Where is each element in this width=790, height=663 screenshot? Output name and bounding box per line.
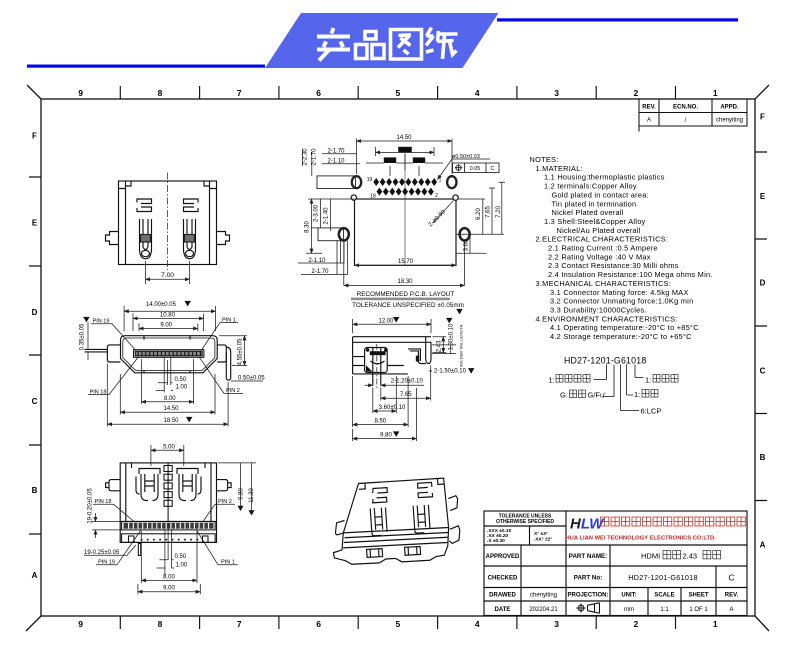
- svg-text:OTHERWISE SPECIFIED: OTHERWISE SPECIFIED: [496, 519, 554, 525]
- svg-text:4.1 Operating temperature:-2: 4.1 Operating temperature:-20°C to +85°C: [550, 323, 699, 332]
- svg-text:2-2.30: 2-2.30: [303, 148, 309, 166]
- svg-text:SOLDER TAIL LENGTH: SOLDER TAIL LENGTH: [459, 324, 464, 367]
- svg-text:8.30: 8.30: [305, 221, 311, 233]
- svg-text:HD27-1201-G61018: HD27-1201-G61018: [564, 356, 646, 366]
- svg-text:Nickel/Au Plated overall: Nickel/Au Plated overall: [557, 226, 641, 235]
- svg-text:6: 6: [316, 88, 321, 98]
- svg-text:B: B: [760, 453, 766, 462]
- svg-text:14.50: 14.50: [163, 406, 179, 412]
- svg-text:3: 3: [554, 88, 559, 98]
- svg-text:2-1.20±0.10: 2-1.20±0.10: [391, 379, 424, 385]
- svg-text:7: 7: [237, 619, 242, 629]
- svg-text:2-1.70: 2-1.70: [311, 269, 329, 275]
- svg-text:CHECKED: CHECKED: [488, 576, 518, 582]
- svg-text:4.ENVIRONMENT CHARACTERISTICS: 4.ENVIRONMENT CHARACTERISTICS:: [536, 314, 678, 323]
- svg-text:1: 1: [439, 178, 442, 184]
- svg-text:6.20: 6.20: [476, 208, 482, 220]
- svg-text:NOTES:: NOTES:: [530, 155, 559, 164]
- svg-text:3.60±0.10: 3.60±0.10: [379, 405, 406, 411]
- svg-text:2.1 Rating Current :0.5 Am: 2.1 Rating Current :0.5 Ampere: [548, 244, 658, 253]
- svg-text:4.50: 4.50: [415, 158, 424, 163]
- svg-text:4.50: 4.50: [386, 158, 395, 163]
- svg-text:4: 4: [475, 619, 480, 629]
- svg-text:A: A: [647, 118, 651, 124]
- svg-text:1 OF 1: 1 OF 1: [689, 607, 708, 613]
- svg-text:.X ±0.30: .X ±0.30: [487, 538, 505, 544]
- svg-text:HUA LIAN WEI TECHNOLOGY ELECTR: HUA LIAN WEI TECHNOLOGY ELECTRONICS CO;L…: [566, 536, 717, 542]
- svg-text:2: 2: [634, 619, 639, 629]
- svg-text:3.MECHANICAL CHARACTERISTICS:: 3.MECHANICAL CHARACTERISTICS:: [536, 279, 672, 288]
- svg-text:2-1.50±0.10: 2-1.50±0.10: [434, 368, 467, 374]
- svg-text:X° ±3°: X° ±3°: [534, 531, 548, 537]
- svg-text:C: C: [491, 166, 495, 172]
- svg-text:REV.: REV.: [725, 593, 739, 599]
- svg-text:2-1.70: 2-1.70: [312, 148, 318, 166]
- svg-text:.XX° ±2°: .XX° ±2°: [534, 537, 552, 543]
- svg-text:2-1.10: 2-1.10: [308, 258, 326, 264]
- svg-text:2: 2: [634, 88, 639, 98]
- svg-text:2.3 Contact Resistance:30 M: 2.3 Contact Resistance:30 Milli ohms: [548, 261, 679, 270]
- svg-text:chenyiting: chenyiting: [530, 593, 557, 599]
- svg-text:14.50: 14.50: [396, 135, 412, 141]
- svg-text:/: /: [685, 118, 687, 124]
- svg-text:0.05: 0.05: [470, 166, 481, 172]
- svg-text:0.50: 0.50: [175, 554, 187, 560]
- svg-text:ECN.NO.: ECN.NO.: [673, 105, 698, 111]
- svg-text:3.60: 3.60: [464, 239, 470, 251]
- svg-text:8: 8: [158, 88, 163, 98]
- svg-text:1.2 terminals:Copper Alloy: 1.2 terminals:Copper Alloy: [544, 182, 637, 191]
- svg-text:Gold plated in contact are: Gold plated in contact area:: [552, 190, 649, 199]
- svg-text:chenyiting: chenyiting: [716, 118, 743, 124]
- svg-text:HDMI: HDMI: [641, 552, 660, 561]
- svg-text:6:LCP: 6:LCP: [641, 406, 662, 415]
- svg-text:1.3 Shell:Steel&Copper Alloy: 1.3 Shell:Steel&Copper Alloy: [544, 217, 646, 226]
- svg-text:D: D: [760, 279, 766, 288]
- svg-text:2.2 Rating Voltage :40 V: 2.2 Rating Voltage :40 V Max: [548, 252, 651, 261]
- svg-text:4: 4: [475, 88, 480, 98]
- svg-text:C: C: [728, 573, 734, 583]
- svg-text:15.70: 15.70: [398, 259, 414, 265]
- svg-text:E: E: [760, 192, 766, 201]
- svg-text:9: 9: [78, 619, 83, 629]
- svg-text:REV.: REV.: [642, 105, 656, 111]
- svg-text:E: E: [32, 219, 38, 228]
- svg-text:2: 2: [435, 193, 438, 199]
- svg-text:3.3 Durability:10000Cycles.: 3.3 Durability:10000Cycles.: [550, 306, 647, 315]
- svg-text:PART No:: PART No:: [574, 575, 602, 582]
- svg-text:SHEET: SHEET: [688, 593, 708, 599]
- svg-text:8.50: 8.50: [374, 419, 386, 425]
- svg-text:4.55±0.05: 4.55±0.05: [238, 338, 244, 365]
- svg-text:2.4 Insulation Resistance:10: 2.4 Insulation Resistance:100 Mega ohms …: [548, 270, 713, 279]
- svg-text:1: 1: [713, 619, 718, 629]
- svg-text:1:: 1:: [634, 390, 640, 399]
- svg-text:A: A: [32, 571, 38, 580]
- svg-text:D: D: [32, 308, 38, 317]
- svg-text:18.50: 18.50: [163, 418, 179, 424]
- svg-text:2.43: 2.43: [437, 340, 443, 352]
- svg-text:F: F: [760, 113, 765, 122]
- svg-text:TOLERANCE UNSPECIFIED ±0.05m: TOLERANCE UNSPECIFIED ±0.05mm: [352, 302, 464, 309]
- svg-text:18.30: 18.30: [397, 279, 413, 285]
- svg-text:1:: 1:: [549, 375, 555, 384]
- svg-text:UNIT:: UNIT:: [621, 593, 636, 599]
- svg-text:PROJECTION:: PROJECTION:: [567, 593, 608, 599]
- svg-text:G/Fu’: G/Fu’: [588, 390, 607, 399]
- svg-text:F: F: [32, 132, 37, 141]
- svg-text:1.00: 1.00: [176, 563, 188, 569]
- svg-text:5.00: 5.00: [163, 444, 175, 450]
- svg-text:4.2 Storage temperature:-20°: 4.2 Storage temperature:-20°C to +65°C: [550, 332, 692, 341]
- svg-text:5: 5: [396, 619, 401, 629]
- svg-text:Tin plated in termination: Tin plated in termination: [552, 199, 637, 208]
- svg-text:1:1: 1:1: [660, 607, 669, 613]
- svg-text:9: 9: [78, 88, 83, 98]
- svg-text:6.20: 6.20: [401, 148, 410, 153]
- svg-text:11.30: 11.30: [249, 488, 255, 503]
- svg-text:APPD.: APPD.: [720, 105, 739, 111]
- svg-text:14.00±0.05: 14.00±0.05: [146, 302, 177, 308]
- svg-text:2-3.00: 2-3.00: [314, 204, 320, 222]
- svg-text:8.00: 8.00: [164, 396, 176, 402]
- svg-text:7.65: 7.65: [486, 206, 492, 218]
- svg-text:5: 5: [396, 88, 401, 98]
- svg-text:1.30±0.10: 1.30±0.10: [448, 323, 454, 350]
- svg-text:1: 1: [713, 88, 718, 98]
- svg-text:7.65: 7.65: [400, 392, 412, 398]
- svg-text:3.2 Connector Unmating forc: 3.2 Connector Unmating force:1.0Kg min: [550, 297, 693, 306]
- svg-text:9.80: 9.80: [239, 488, 245, 500]
- svg-text:Nickel Plated overall: Nickel Plated overall: [552, 208, 624, 217]
- svg-text:2-ø0.90: 2-ø0.90: [428, 209, 447, 228]
- svg-text:6: 6: [316, 619, 321, 629]
- svg-text:0.35±0.05: 0.35±0.05: [80, 323, 86, 350]
- svg-text:DATE: DATE: [495, 607, 511, 613]
- svg-text:202204.21: 202204.21: [529, 607, 558, 613]
- svg-text:C: C: [32, 397, 38, 406]
- svg-text:1.MATERIAL:: 1.MATERIAL:: [536, 164, 583, 173]
- svg-text:APPROVED: APPROVED: [486, 554, 520, 560]
- svg-text:mm: mm: [624, 607, 634, 613]
- svg-text:18: 18: [370, 194, 376, 200]
- svg-text:12.00: 12.00: [378, 318, 394, 324]
- svg-text:A: A: [760, 541, 766, 550]
- svg-text:8: 8: [158, 619, 163, 629]
- svg-text:RECOMMENDED P.C.B. LAYOUT: RECOMMENDED P.C.B. LAYOUT: [357, 291, 455, 298]
- svg-text:DRAWED: DRAWED: [489, 593, 516, 599]
- svg-text:19: 19: [367, 177, 373, 183]
- svg-text:7: 7: [237, 88, 242, 98]
- svg-text:10.80: 10.80: [160, 312, 176, 318]
- svg-text:19-0.20±0.05: 19-0.20±0.05: [88, 488, 94, 524]
- svg-text:3.1 Connector Mating force:: 3.1 Connector Mating force: 4.5kg MAX: [550, 288, 689, 297]
- svg-text:8.00: 8.00: [163, 574, 175, 580]
- svg-text:SCALE: SCALE: [654, 593, 674, 599]
- svg-text:HD27-1201-G61018: HD27-1201-G61018: [628, 573, 698, 582]
- svg-text:1.00: 1.00: [176, 384, 188, 390]
- svg-text:B: B: [32, 486, 38, 495]
- svg-text:1:: 1:: [645, 375, 651, 384]
- svg-text:9.00: 9.00: [160, 322, 172, 328]
- svg-text:PART NAME:: PART NAME:: [569, 553, 607, 560]
- svg-text:C: C: [760, 367, 766, 376]
- svg-text:0.50: 0.50: [175, 377, 187, 383]
- svg-text:9.80: 9.80: [380, 433, 392, 439]
- svg-text:7.20: 7.20: [496, 206, 502, 218]
- svg-text:2.ELECTRICAL CHARACTERISTICS:: 2.ELECTRICAL CHARACTERISTICS:: [536, 235, 669, 244]
- svg-text:HLW: HLW: [570, 516, 605, 533]
- svg-text:G:: G:: [560, 390, 568, 399]
- svg-text:2.43: 2.43: [683, 552, 698, 561]
- svg-text:3: 3: [554, 619, 559, 629]
- svg-text:1.1 Housing:thermoplastic pl: 1.1 Housing:thermoplastic plastics: [544, 173, 665, 182]
- svg-text:7.00: 7.00: [161, 272, 174, 279]
- svg-text:A: A: [729, 607, 733, 613]
- svg-text:9.00: 9.00: [163, 586, 175, 592]
- svg-text:2-1.40: 2-1.40: [324, 207, 330, 225]
